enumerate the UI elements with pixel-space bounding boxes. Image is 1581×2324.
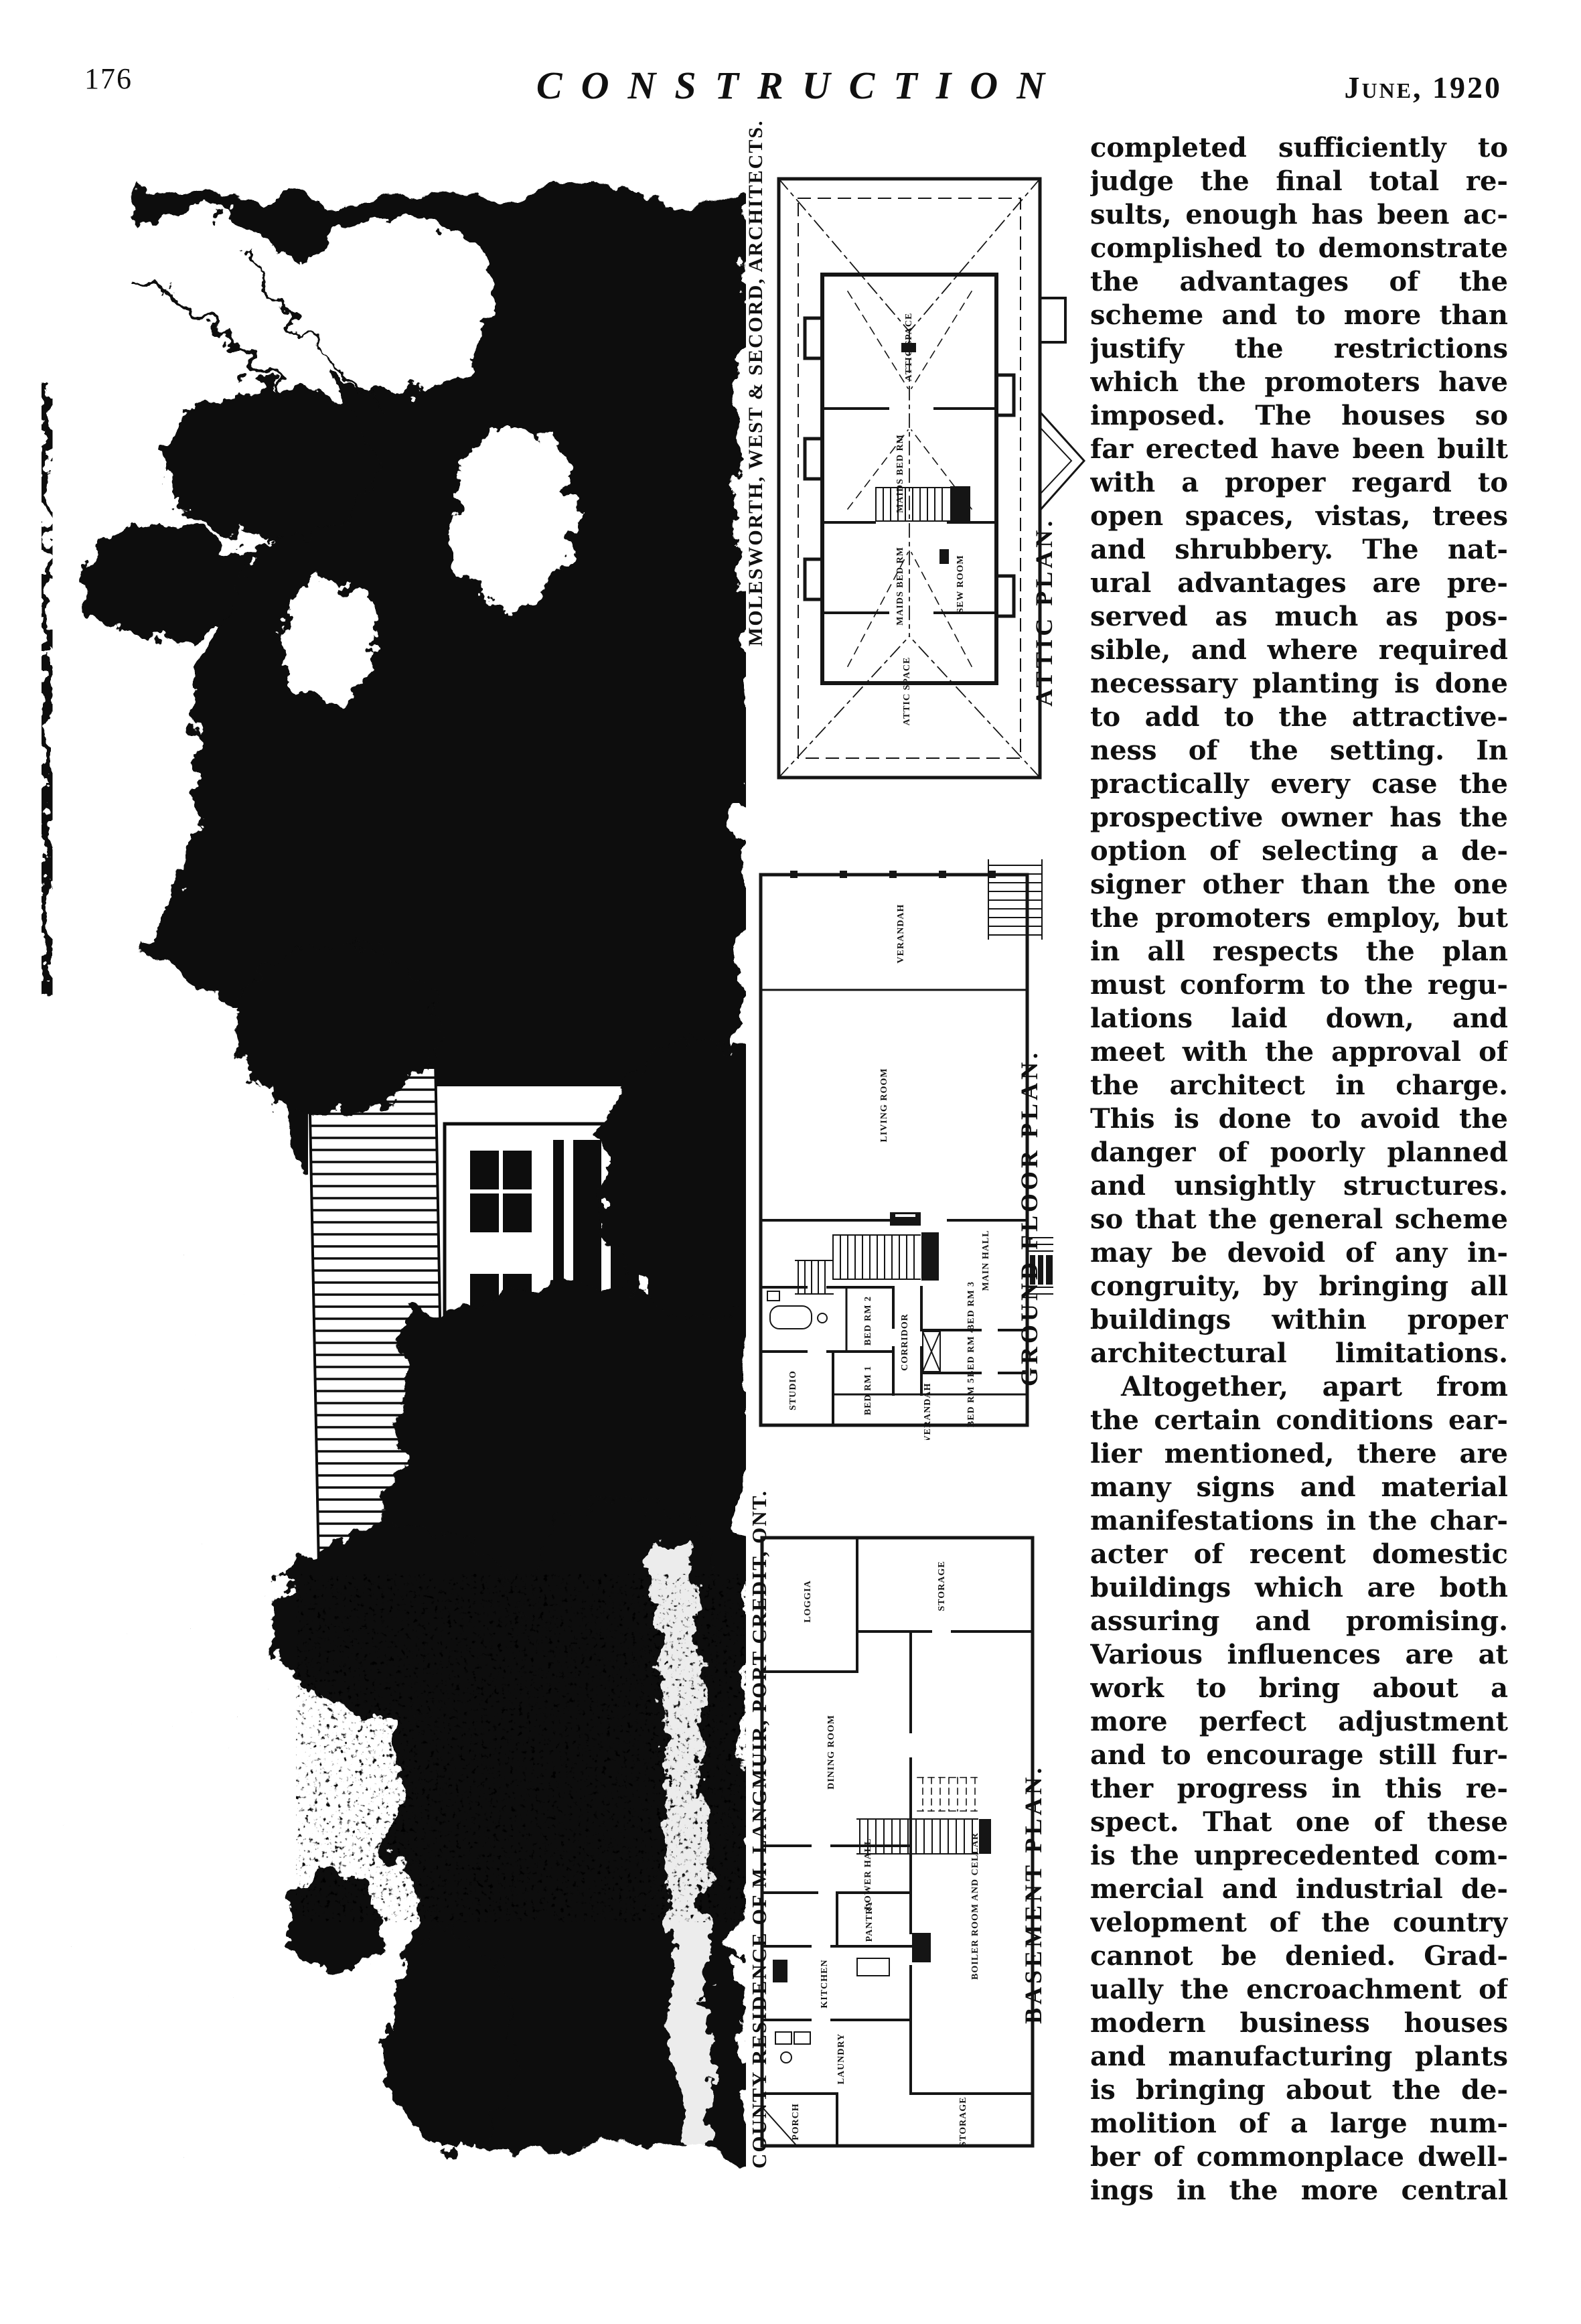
- article-line: is bringing about the de-: [1090, 2074, 1508, 2107]
- article-line: buildings which are both: [1090, 1571, 1508, 1605]
- article-line: velopment of the country: [1090, 1906, 1508, 1940]
- room-label: PORCH: [791, 2103, 801, 2140]
- room-label: ATTIC SPACE: [902, 657, 912, 726]
- basement-stairs: [857, 1819, 978, 1854]
- room-label: STORAGE: [937, 1560, 947, 1611]
- ground-floor-plan-drawing: VERANDAH LIVING ROOM MAIN HALL BED RM 2 …: [753, 859, 1055, 1440]
- room-label: LOWER HALL: [863, 1838, 873, 1910]
- room-label: LOGGIA: [803, 1580, 813, 1623]
- article-line: with a proper regard to: [1090, 466, 1508, 500]
- article-line: necessary planting is done: [1090, 667, 1508, 701]
- entrance-steps: [988, 860, 1042, 939]
- architects-caption: MOLESWORTH, WEST & SECORD, ARCHITECTS.: [746, 119, 766, 646]
- article-line: signer other than the one: [1090, 868, 1508, 901]
- article-line: meet with the approval of: [1090, 1035, 1508, 1069]
- article-line: practically every case the: [1090, 768, 1508, 801]
- residence-caption: COUNTY RESIDENCE OF M. LANGMUIR, PORT CR…: [749, 1490, 769, 2169]
- driveway-speckle: [296, 1574, 746, 1922]
- article-line: so that the general scheme: [1090, 1203, 1508, 1236]
- article-line: mercial and industrial de-: [1090, 1873, 1508, 1906]
- article-line: Altogether, apart from: [1090, 1370, 1508, 1404]
- article-line: in all respects the plan: [1090, 935, 1508, 968]
- article-line: to add to the attractive-: [1090, 701, 1508, 734]
- article-line: justify the restrictions: [1090, 332, 1508, 366]
- room-label: BED RM 3: [966, 1281, 976, 1331]
- room-label: BED RM 1: [863, 1366, 873, 1415]
- article-line: ually the encroachment of: [1090, 1973, 1508, 2007]
- article-line: the promoters employ, but: [1090, 901, 1508, 935]
- article-line: and unsightly structures.: [1090, 1169, 1508, 1203]
- article-line: may be devoid of any in-: [1090, 1236, 1508, 1270]
- article-line: imposed. The houses so: [1090, 399, 1508, 433]
- room-label: CORRIDOR: [900, 1313, 910, 1371]
- residence-photo: [42, 167, 746, 2203]
- room-label: SEW ROOM: [956, 555, 966, 613]
- room-label: KITCHEN: [820, 1959, 830, 2008]
- room-label: MAIN HALL: [981, 1230, 991, 1291]
- scan-streak: [42, 382, 50, 998]
- article-line: and manufacturing plants: [1090, 2040, 1508, 2074]
- room-label: BOILER ROOM AND CELLAR: [970, 1832, 980, 1980]
- article-line: the architect in charge.: [1090, 1069, 1508, 1102]
- magazine-page: 176 CONSTRUCTION June, 1920: [0, 0, 1581, 2324]
- room-label: VERANDAH: [896, 904, 906, 964]
- room-label: MAIDS BED RM: [895, 547, 905, 626]
- article-line: far erected have been built: [1090, 433, 1508, 466]
- attic-plan-caption: ATTIC PLAN.: [1032, 518, 1056, 707]
- article-line: open spaces, vistas, trees: [1090, 500, 1508, 533]
- article-line: served as much as pos-: [1090, 600, 1508, 634]
- article-line: lations laid down, and: [1090, 1002, 1508, 1035]
- main-stairs: [796, 1235, 920, 1294]
- room-label: PANTRY: [864, 1900, 875, 1942]
- article-line: cannot be denied. Grad-: [1090, 1940, 1508, 1973]
- article-line: ber of commonplace dwell-: [1090, 2140, 1508, 2174]
- article-line: which the promoters have: [1090, 366, 1508, 399]
- article-line: many signs and material: [1090, 1471, 1508, 1504]
- room-label: LAUNDRY: [836, 2033, 846, 2085]
- basement-plan-drawing: LOGGIA STORAGE DINING ROOM LOWER HALL PA…: [757, 1531, 1049, 2157]
- article-line: manifestations in the char-: [1090, 1504, 1508, 1538]
- article-line: congruity, by bringing all: [1090, 1270, 1508, 1303]
- article-line: danger of poorly planned: [1090, 1136, 1508, 1169]
- article-line: ness of the setting. In: [1090, 734, 1508, 768]
- article-line: architectural limitations.: [1090, 1337, 1508, 1370]
- article-line: sible, and where required: [1090, 634, 1508, 667]
- stairs-up-dashed: [917, 1777, 978, 1811]
- room-label: VERANDAH: [923, 1383, 933, 1440]
- article-line: sults, enough has been ac-: [1090, 198, 1508, 232]
- article-line: acter of recent domestic: [1090, 1538, 1508, 1571]
- attic-stairs: [876, 488, 950, 521]
- room-label: LIVING ROOM: [879, 1068, 889, 1143]
- article-line: molition of a large num-: [1090, 2107, 1508, 2140]
- article-line: the advantages of the: [1090, 265, 1508, 299]
- article-line: modern business houses: [1090, 2007, 1508, 2040]
- article-line: Various influences are at: [1090, 1638, 1508, 1672]
- article-line: work to bring about a: [1090, 1672, 1508, 1705]
- article-line: more perfect adjustment: [1090, 1705, 1508, 1739]
- article-line: complished to demonstrate: [1090, 232, 1508, 265]
- article-line: prospective owner has the: [1090, 801, 1508, 834]
- article-line: judge the final total re-: [1090, 165, 1508, 198]
- room-label: STUDIO: [788, 1370, 798, 1410]
- article-line: buildings within proper: [1090, 1303, 1508, 1337]
- room-label: DINING ROOM: [826, 1715, 836, 1790]
- article-line: must conform to the regu-: [1090, 968, 1508, 1002]
- article-line: scheme and to more than: [1090, 299, 1508, 332]
- ground-floor-plan-caption: GROUND FLOOR PLAN.: [1017, 1049, 1041, 1386]
- article-line: and to encourage still fur-: [1090, 1739, 1508, 1772]
- room-label: BED RM 2: [863, 1296, 873, 1346]
- room-label: ATTIC SPACE: [904, 313, 914, 382]
- room-label: BED RM 4: [966, 1327, 976, 1377]
- article-line: ther progress in this re-: [1090, 1772, 1508, 1806]
- basement-plan-caption: BASEMENT PLAN.: [1021, 1765, 1045, 2024]
- room-label: BED RM 5: [966, 1378, 976, 1427]
- article-line: assuring and promising.: [1090, 1605, 1508, 1638]
- article-line: the certain conditions ear-: [1090, 1404, 1508, 1437]
- room-label: STORAGE: [958, 2096, 968, 2147]
- article-line: option of selecting a de-: [1090, 834, 1508, 868]
- room-label: MAIDS BED RM: [895, 434, 905, 513]
- article-line: and shrubbery. The nat-: [1090, 533, 1508, 567]
- article-line: This is done to avoid the: [1090, 1102, 1508, 1136]
- issue-date: June, 1920: [1344, 70, 1502, 105]
- article-line: lier mentioned, there are: [1090, 1437, 1508, 1471]
- article-line: spect. That one of these: [1090, 1806, 1508, 1839]
- article-line: is the unprecedented com-: [1090, 1839, 1508, 1873]
- article-column: completed sufficiently tojudge the final…: [1090, 131, 1508, 2207]
- article-line: ural advantages are pre-: [1090, 567, 1508, 600]
- article-line: completed sufficiently to: [1090, 131, 1508, 165]
- article-line: ings in the more central: [1090, 2174, 1508, 2207]
